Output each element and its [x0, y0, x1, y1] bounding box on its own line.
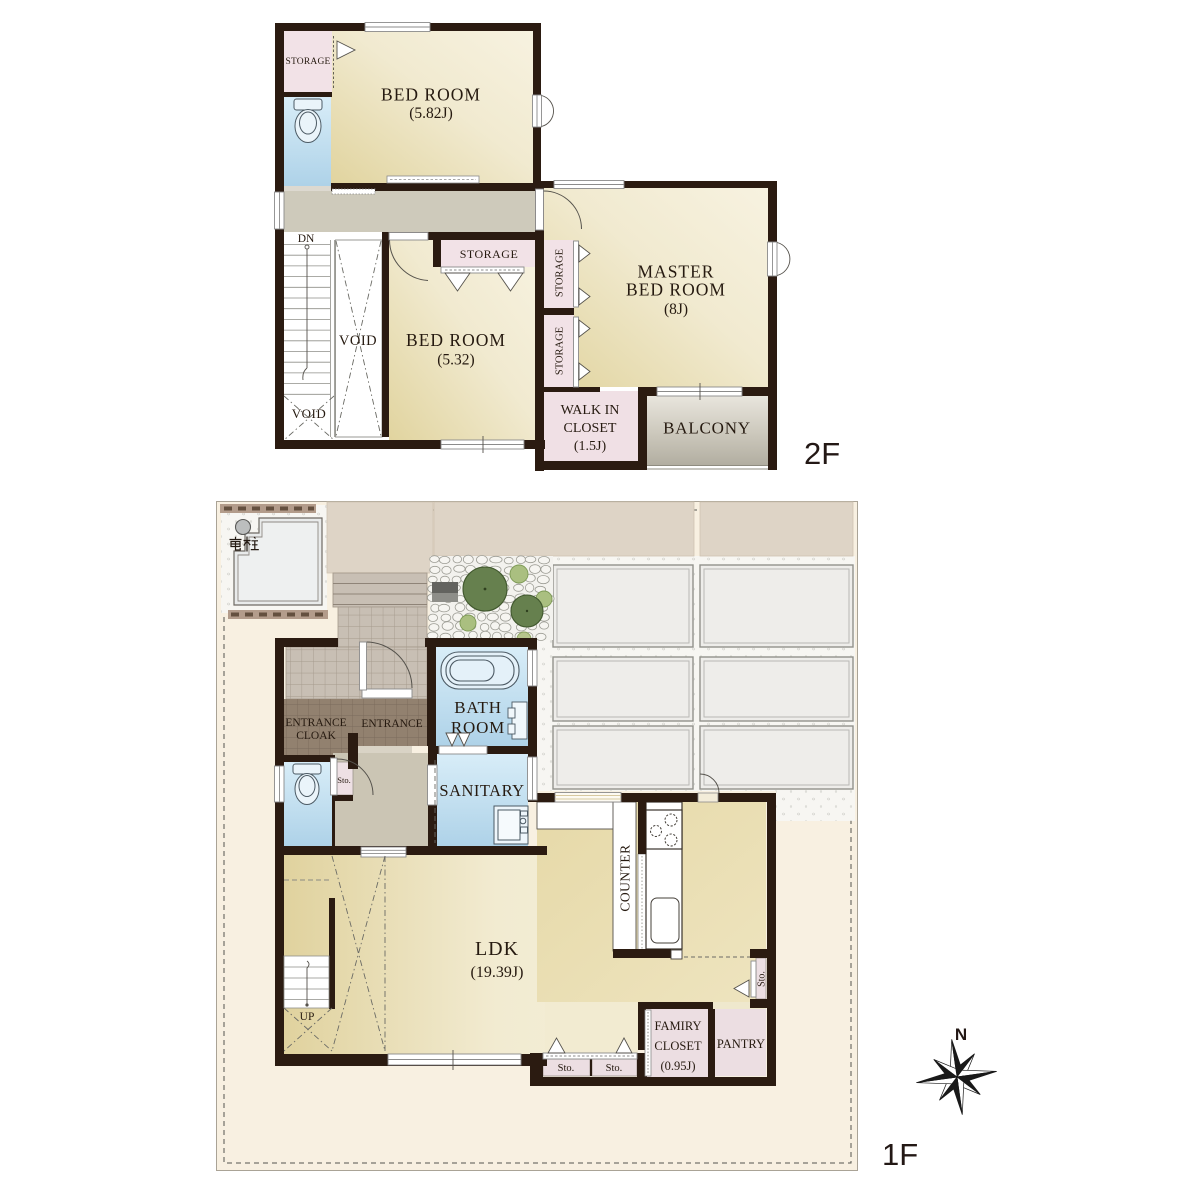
svg-text:(5.32): (5.32) [437, 352, 474, 369]
svg-text:PANTRY: PANTRY [717, 1037, 765, 1051]
svg-text:SANITARY: SANITARY [439, 781, 524, 800]
svg-text:STORAGE: STORAGE [460, 247, 519, 261]
svg-text:N: N [955, 1025, 967, 1044]
svg-text:CLOSET: CLOSET [654, 1039, 702, 1053]
svg-text:(19.39J): (19.39J) [471, 964, 524, 981]
svg-text:ENTRANCE: ENTRANCE [361, 718, 422, 730]
svg-text:BED ROOM: BED ROOM [406, 330, 506, 350]
svg-text:ENTRANCE: ENTRANCE [285, 717, 346, 729]
svg-text:BED ROOM: BED ROOM [381, 85, 481, 105]
svg-text:(5.82J): (5.82J) [409, 105, 452, 122]
svg-text:ROOM: ROOM [451, 718, 505, 737]
svg-text:Sto.: Sto. [558, 1063, 575, 1074]
svg-text:STORAGE: STORAGE [555, 249, 566, 297]
svg-text:BED ROOM: BED ROOM [626, 280, 726, 300]
svg-text:(0.95J): (0.95J) [660, 1059, 695, 1073]
svg-text:VOID: VOID [339, 333, 377, 349]
svg-text:Sto.: Sto. [757, 971, 768, 987]
svg-text:STORAGE: STORAGE [555, 327, 566, 375]
svg-text:(1.5J): (1.5J) [574, 439, 607, 454]
svg-text:1F: 1F [882, 1137, 918, 1172]
svg-text:Sto.: Sto. [337, 775, 350, 785]
svg-text:MASTER: MASTER [638, 262, 715, 282]
svg-text:BATH: BATH [454, 698, 502, 717]
svg-text:CLOSET: CLOSET [564, 421, 617, 436]
svg-text:VOID: VOID [292, 406, 327, 421]
svg-text:WALK IN: WALK IN [561, 403, 620, 418]
svg-text:DN: DN [298, 233, 315, 245]
svg-text:Sto.: Sto. [606, 1063, 623, 1074]
svg-text:UP: UP [300, 1011, 315, 1023]
svg-text:STORAGE: STORAGE [285, 57, 330, 67]
svg-text:FAMIRY: FAMIRY [654, 1019, 701, 1033]
svg-text:CLOAK: CLOAK [296, 730, 336, 742]
svg-text:2F: 2F [804, 436, 840, 471]
svg-text:LDK: LDK [475, 938, 519, 960]
svg-text:BALCONY: BALCONY [663, 419, 751, 438]
svg-text:(8J): (8J) [664, 301, 688, 318]
svg-text:COUNTER: COUNTER [618, 844, 633, 911]
